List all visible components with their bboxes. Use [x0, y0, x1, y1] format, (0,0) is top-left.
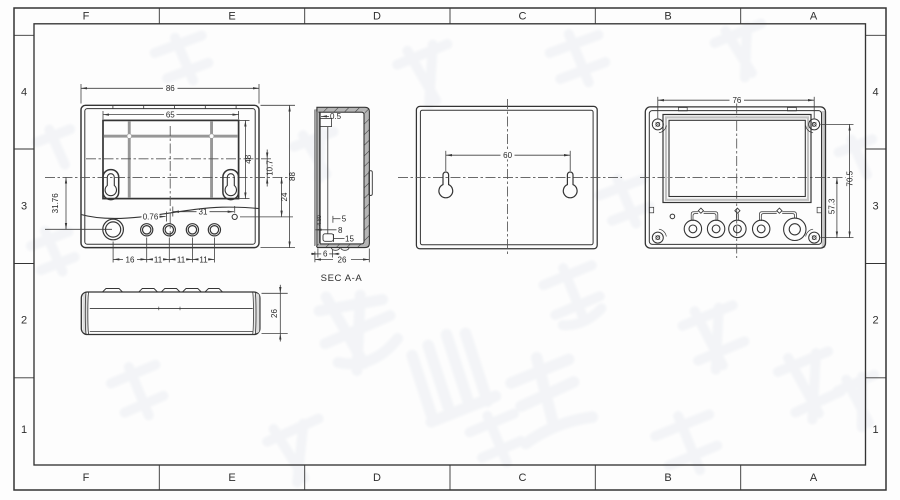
svg-text:2: 2 — [872, 315, 878, 327]
svg-text:F: F — [83, 472, 90, 484]
svg-text:48: 48 — [244, 154, 253, 163]
svg-text:3: 3 — [872, 201, 878, 213]
svg-text:0.76: 0.76 — [143, 212, 159, 221]
svg-text:E: E — [228, 11, 235, 23]
svg-text:11: 11 — [199, 255, 208, 264]
svg-text:57.3: 57.3 — [827, 198, 836, 214]
svg-text:F: F — [83, 11, 90, 23]
svg-text:76: 76 — [732, 96, 741, 105]
svg-text:D: D — [373, 11, 381, 23]
svg-text:A: A — [810, 472, 818, 484]
svg-text:4: 4 — [21, 87, 27, 99]
svg-text:B: B — [664, 11, 671, 23]
svg-text:C: C — [519, 11, 527, 23]
svg-text:E: E — [228, 472, 235, 484]
svg-text:B: B — [664, 472, 671, 484]
svg-text:4: 4 — [872, 87, 878, 99]
svg-text:6: 6 — [323, 250, 328, 259]
svg-text:A: A — [810, 11, 818, 23]
svg-text:31: 31 — [199, 208, 208, 217]
svg-text:SEC A-A: SEC A-A — [321, 273, 363, 284]
svg-text:11: 11 — [154, 255, 163, 264]
svg-text:24: 24 — [280, 192, 289, 201]
svg-text:88: 88 — [288, 172, 297, 181]
svg-text:1: 1 — [21, 424, 27, 436]
svg-text:70.5: 70.5 — [846, 170, 855, 186]
svg-text:0.5: 0.5 — [330, 112, 342, 121]
svg-text:C: C — [519, 472, 527, 484]
svg-text:16: 16 — [126, 255, 135, 264]
svg-text:10.7: 10.7 — [266, 160, 275, 176]
svg-text:26: 26 — [270, 309, 279, 318]
svg-text:5: 5 — [342, 215, 347, 224]
svg-text:4.80: 4.80 — [317, 215, 323, 226]
svg-text:26: 26 — [338, 255, 347, 264]
svg-text:D: D — [373, 472, 381, 484]
svg-text:11: 11 — [177, 255, 186, 264]
svg-text:3: 3 — [21, 201, 27, 213]
svg-text:1: 1 — [872, 424, 878, 436]
svg-text:60: 60 — [503, 151, 512, 160]
svg-text:86: 86 — [166, 84, 175, 93]
svg-text:15: 15 — [345, 234, 354, 243]
svg-text:31.76: 31.76 — [51, 193, 60, 214]
svg-text:65: 65 — [166, 111, 175, 120]
svg-text:2: 2 — [21, 315, 27, 327]
svg-text:8: 8 — [338, 226, 343, 235]
